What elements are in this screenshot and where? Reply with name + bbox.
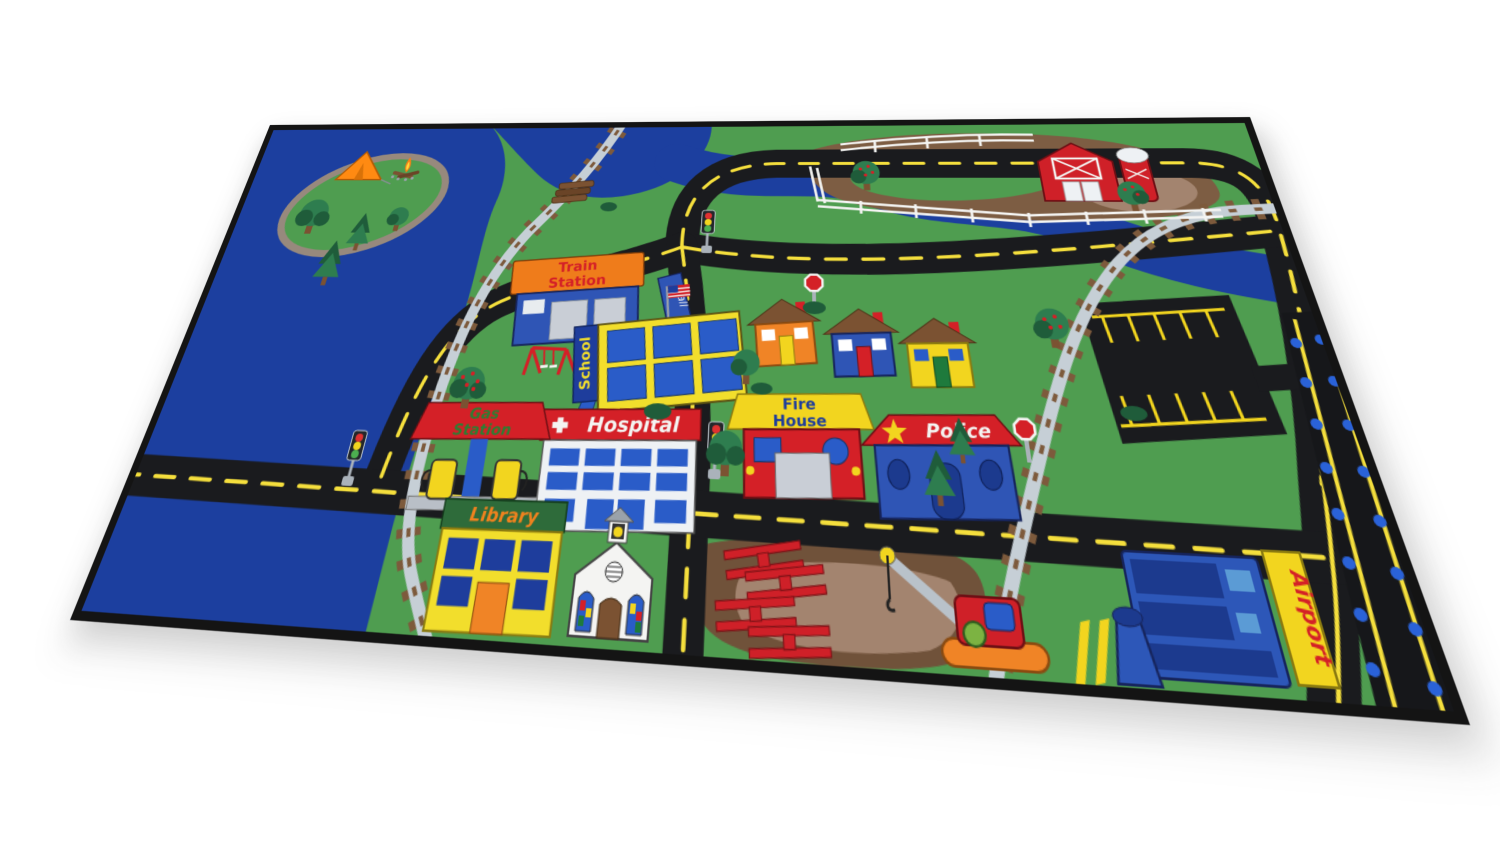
rug-artwork: Train Station Mall (70, 117, 1470, 725)
play-rug: Train Station Mall (70, 117, 1470, 725)
library: Library (421, 499, 568, 637)
police-station: Police (859, 415, 1034, 521)
gas-label-2: Station (451, 421, 512, 439)
gas-label-1: Gas (468, 405, 500, 423)
fire-house: Fire House (727, 394, 880, 499)
library-label: Library (468, 503, 541, 529)
fire-label-1: Fire (782, 396, 816, 414)
fire-label-2: House (773, 412, 828, 431)
stained-glass-window (626, 594, 645, 635)
us-flag (668, 284, 690, 298)
product-photo-stage: Train Station Mall (0, 0, 1500, 844)
school-label: School (577, 336, 594, 391)
